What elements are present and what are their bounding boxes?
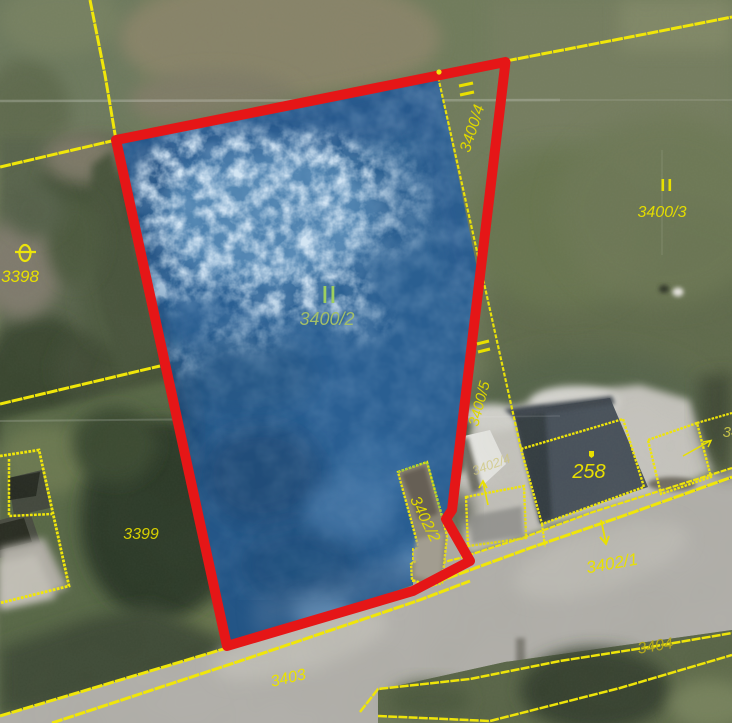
svg-text:3398: 3398 <box>1 267 39 286</box>
svg-text:3400/2: 3400/2 <box>299 309 354 329</box>
svg-text:34: 34 <box>723 424 732 441</box>
svg-text:3399: 3399 <box>123 526 159 543</box>
svg-text:258: 258 <box>571 461 605 483</box>
svg-text:3400/3: 3400/3 <box>638 204 687 221</box>
